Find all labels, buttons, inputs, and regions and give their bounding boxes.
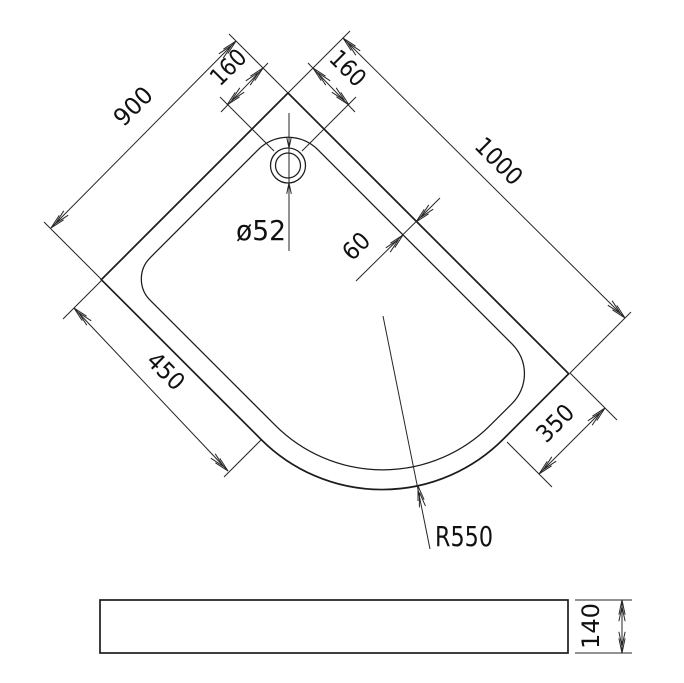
dim-160-right-label: 160 (324, 44, 372, 92)
dim-450-label: 450 (141, 347, 190, 396)
drain-inner-circle (276, 153, 301, 178)
shower-tray-drawing: 900 1000 160 160 60 450 350 ø52 R550 140 (0, 0, 684, 683)
leader-line-radius (383, 316, 430, 549)
dim-line-1000 (343, 38, 625, 318)
dim-radius-label: R550 (435, 520, 493, 553)
side-view-rect (100, 600, 568, 653)
basin-rim-outline (129, 120, 542, 533)
dimension-lines (51, 38, 625, 653)
extension-line-west-corner (44, 222, 102, 280)
dim-140-label: 140 (577, 603, 605, 649)
dim-1000-label: 1000 (469, 132, 528, 191)
technical-drawing-canvas: 900 1000 160 160 60 450 350 ø52 R550 140 (0, 0, 684, 683)
dim-drain-diameter-label: ø52 (236, 214, 286, 247)
extension-line-east-lower (570, 373, 617, 420)
dim-60-label: 60 (337, 227, 377, 267)
dim-900-label: 900 (108, 81, 159, 132)
dim-line-450 (74, 308, 228, 471)
extension-line-east-corner (570, 312, 631, 373)
arrowheads (51, 38, 625, 653)
arrowhead (418, 486, 426, 507)
extension-line-curve-left (224, 440, 261, 477)
